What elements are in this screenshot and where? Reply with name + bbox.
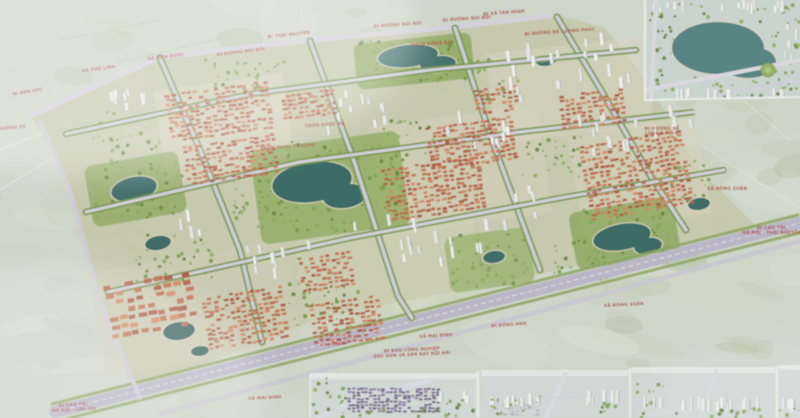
masterplan-board-photo: ĐI ĐỀN SÓCXÃ PHÙ LINHXÃ TIÊN DƯỢCĐI ĐƯỜN… [0,0,800,418]
masterplan-rendering: ĐI ĐỀN SÓCXÃ PHÙ LINHXÃ TIÊN DƯỢCĐI ĐƯỜN… [0,0,800,418]
photo-wash-flat [0,0,800,418]
